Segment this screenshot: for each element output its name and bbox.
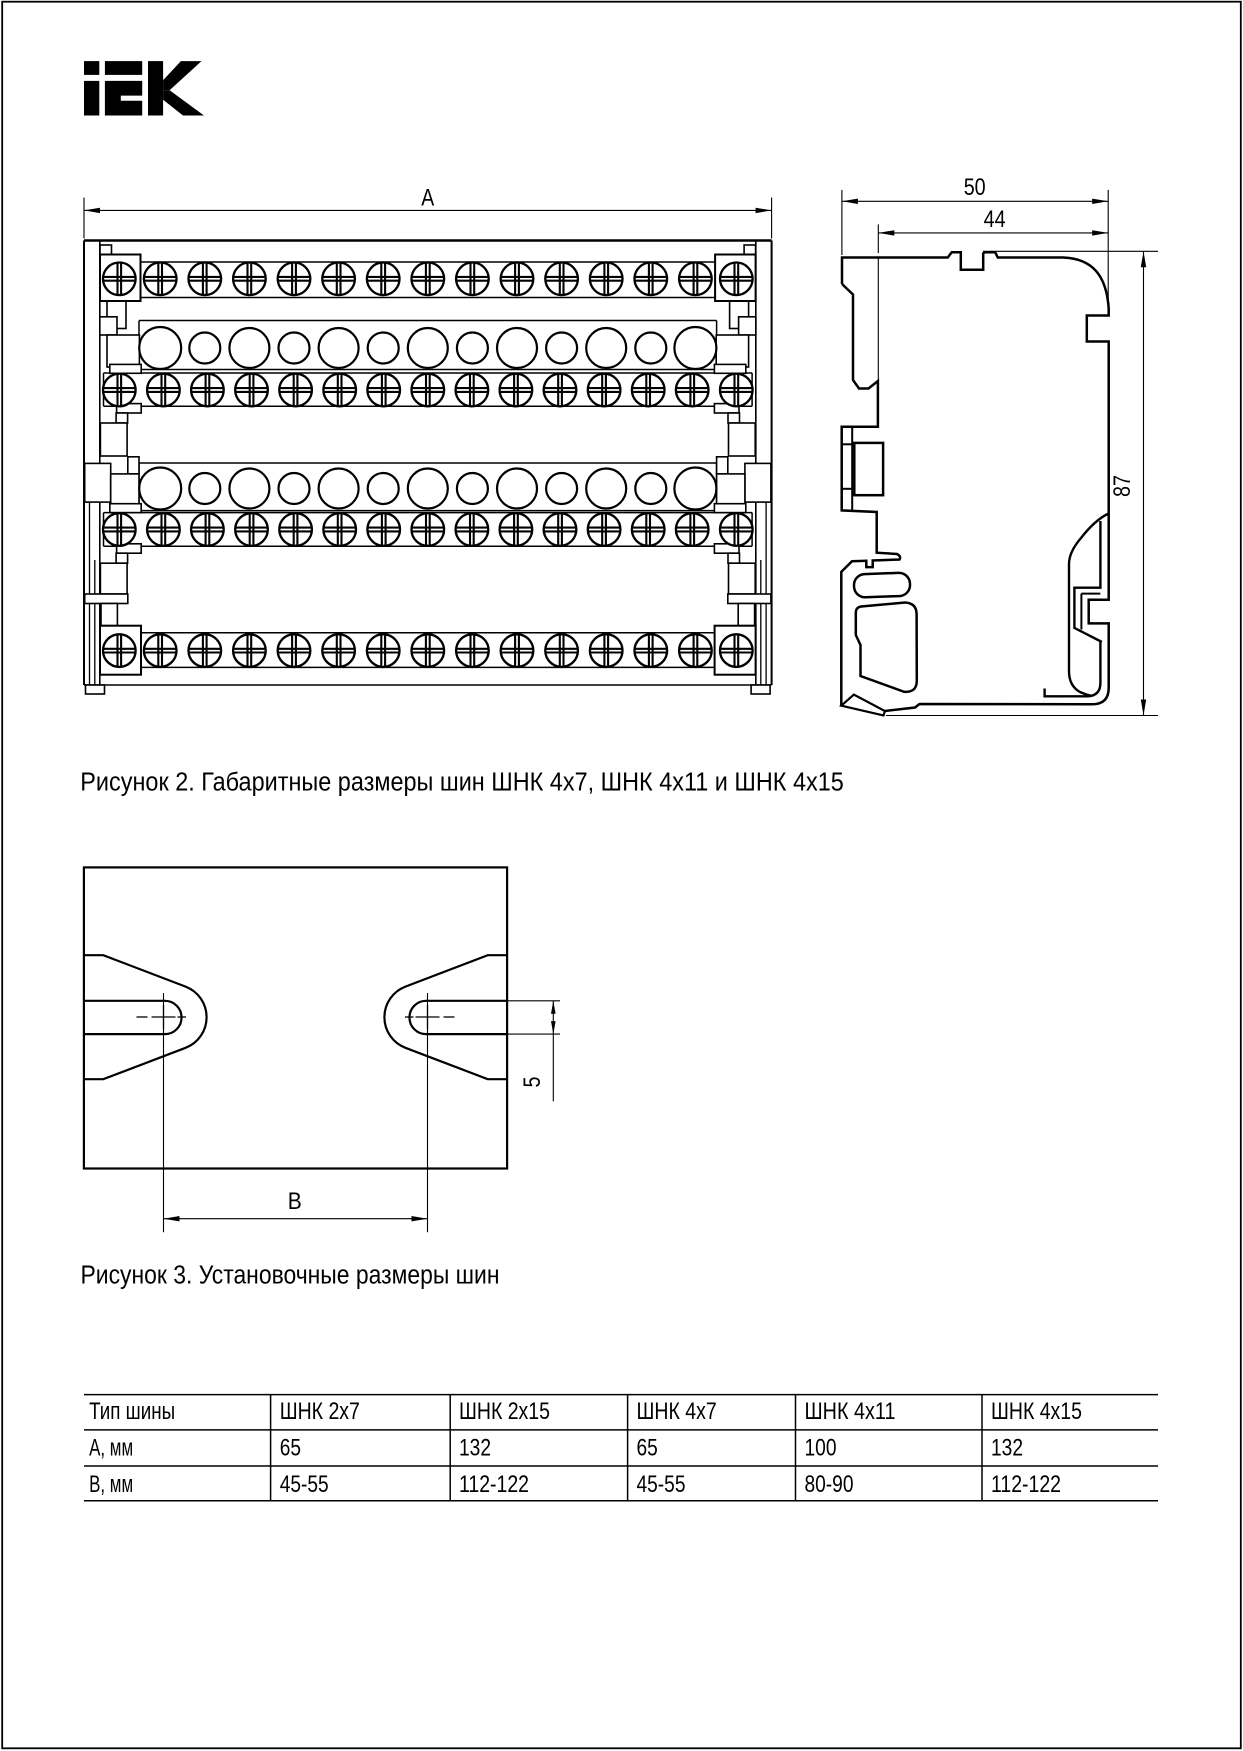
svg-text:112-122: 112-122 — [459, 1471, 529, 1498]
svg-text:ШНК 2х15: ШНК 2х15 — [459, 1398, 550, 1425]
svg-text:100: 100 — [805, 1434, 837, 1461]
svg-text:Рисунок 2. Габаритные размеры: Рисунок 2. Габаритные размеры шин ШНК 4х… — [80, 769, 844, 797]
svg-text:80-90: 80-90 — [805, 1471, 854, 1498]
svg-text:ШНК 4х11: ШНК 4х11 — [805, 1398, 896, 1425]
svg-text:132: 132 — [459, 1434, 491, 1461]
svg-text:Тип шины: Тип шины — [89, 1398, 175, 1425]
svg-text:65: 65 — [637, 1434, 658, 1461]
svg-text:5: 5 — [519, 1077, 546, 1088]
svg-text:А, мм: А, мм — [89, 1434, 133, 1461]
svg-text:В, мм: В, мм — [89, 1471, 133, 1498]
svg-text:45-55: 45-55 — [637, 1471, 686, 1498]
svg-text:65: 65 — [280, 1434, 301, 1461]
svg-text:ШНК 4х15: ШНК 4х15 — [991, 1398, 1082, 1425]
svg-text:44: 44 — [984, 206, 1006, 233]
svg-text:45-55: 45-55 — [280, 1471, 329, 1498]
svg-text:50: 50 — [964, 174, 986, 201]
svg-text:Рисунок 3. Установочные размер: Рисунок 3. Установочные размеры шин — [81, 1262, 500, 1290]
svg-text:ШНК 2х7: ШНК 2х7 — [280, 1398, 360, 1425]
svg-text:132: 132 — [991, 1434, 1023, 1461]
svg-text:112-122: 112-122 — [991, 1471, 1061, 1498]
svg-text:A: A — [421, 184, 434, 211]
svg-text:87: 87 — [1109, 475, 1136, 497]
svg-text:ШНК 4х7: ШНК 4х7 — [637, 1398, 717, 1425]
svg-text:B: B — [288, 1188, 302, 1215]
